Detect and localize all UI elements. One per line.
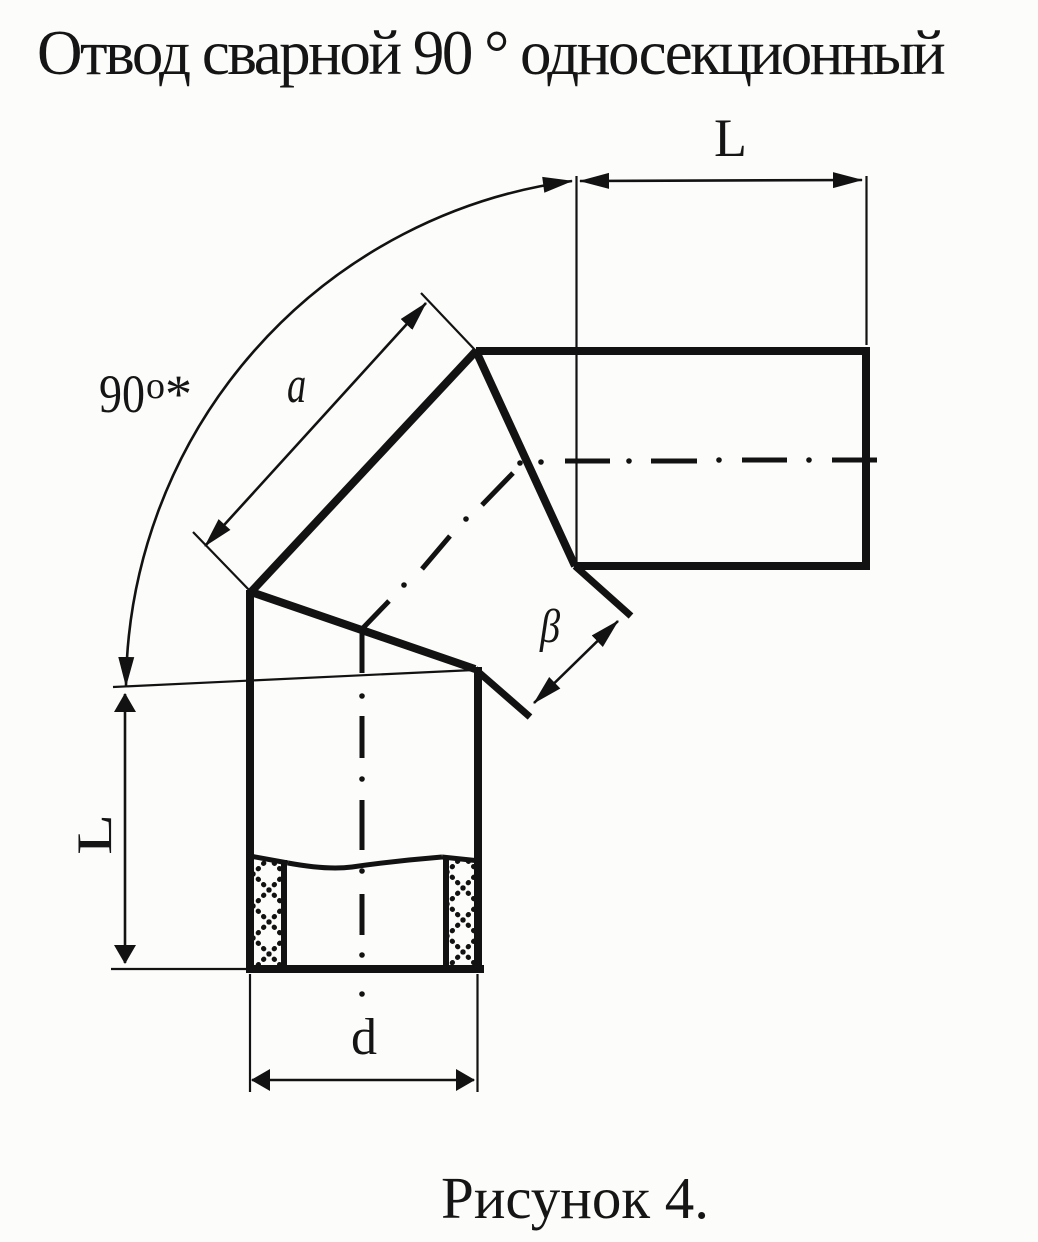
svg-text:90: 90: [99, 364, 145, 424]
svg-text:a: a: [287, 355, 306, 413]
svg-text:β: β: [539, 600, 560, 653]
svg-text:Отвод сварной 90 ° односекцион: Отвод сварной 90 ° односекционный: [37, 18, 945, 88]
svg-text:*: *: [165, 364, 192, 424]
svg-text:d: d: [351, 1009, 377, 1066]
svg-text:L: L: [714, 108, 747, 168]
svg-text:Рисунок 4.: Рисунок 4.: [441, 1165, 709, 1231]
svg-text:о: о: [146, 365, 165, 407]
svg-text:L: L: [66, 814, 122, 855]
